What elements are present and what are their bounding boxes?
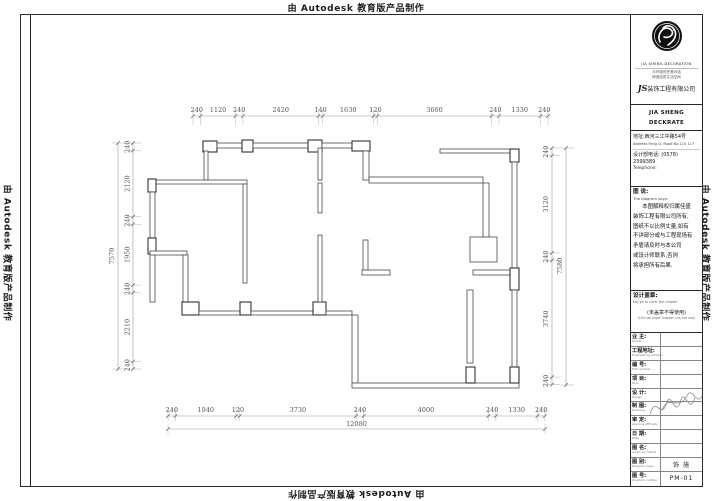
- phone-en: Telephone:: [633, 166, 700, 172]
- dim-label: 3730: [290, 406, 307, 414]
- row-sublabel: Owner: [632, 340, 659, 344]
- company-logo-section: JIA SHENG DECORATION 与环境的完美对话 缔造品质生活空间 J…: [631, 15, 702, 105]
- dim-label: 1950: [124, 246, 132, 263]
- autodesk-watermark-left: 由 Autodesk 教育版产品制作: [2, 185, 15, 322]
- stamp-label-en: Key go to cover the chapter: [633, 300, 700, 304]
- company-name-en-line1: JIA SHENG DECKRATE: [631, 108, 702, 128]
- dim-label: 240: [166, 406, 178, 414]
- dim-label: 240: [538, 106, 550, 114]
- table-row-project-address: 工程地址:Engineering address: [631, 347, 702, 361]
- diagram-label-cn: 图 说:: [633, 189, 700, 196]
- row-value: [661, 333, 702, 346]
- table-row-design: 设 计:Design: [631, 389, 702, 403]
- row-sublabel: Approve officially: [632, 423, 659, 427]
- dim-total-label: 7570: [108, 248, 116, 265]
- table-row-number: 编 号:Plot number: [631, 361, 702, 375]
- floor-plan-drawing: 240 1120 240 2420 140 1630 120 3660 240 …: [31, 14, 628, 487]
- dim-total-label: 7580: [556, 258, 564, 275]
- stamp-section: 设计盖章: Key go to cover the chapter (未盖章不得…: [631, 291, 702, 333]
- row-value: [661, 375, 702, 388]
- dimension-labels: 240 1120 240 2420 140 1630 120 3660 240 …: [108, 106, 564, 428]
- autodesk-watermark-bottom: 由 Autodesk 教育版产品制作: [0, 488, 712, 501]
- table-row-date: 日 期:Date: [631, 430, 702, 444]
- row-sublabel: Item: [632, 382, 659, 386]
- phone-cn: 设计部电话: (0578) 2399389: [633, 152, 700, 166]
- row-sublabel: Plot number: [632, 368, 659, 372]
- dim-label: 240: [124, 359, 132, 371]
- row-value: [661, 347, 702, 360]
- row-sublabel: Engineering address: [632, 354, 659, 358]
- dim-label: 3660: [426, 106, 443, 114]
- title-block: JIA SHENG DECORATION 与环境的完美对话 缔造品质生活空间 J…: [630, 15, 702, 486]
- dim-label: 2120: [124, 175, 132, 192]
- dim-label: 240: [124, 283, 132, 295]
- table-row-drawing-class: 图 别:Diagram class 饰 施: [631, 458, 702, 472]
- note-line: 或设计师联系,否则: [633, 252, 700, 262]
- stamp-note-en: (Did not cover chapter can not use): [633, 316, 700, 320]
- diagram-label-en: The diagram says:: [633, 196, 700, 201]
- autodesk-watermark-top: 由 Autodesk 教育版产品制作: [0, 1, 712, 14]
- dim-label: 1330: [508, 406, 525, 414]
- company-name-cn: JS装饰工程有限公司: [631, 83, 702, 93]
- dim-label: 140: [314, 106, 326, 114]
- dim-label: 240: [542, 375, 550, 387]
- walls: [148, 140, 519, 388]
- table-row-drawing-number: 图 号:Diagram number PM-01: [631, 472, 702, 486]
- dim-label: 240: [542, 250, 550, 262]
- dim-label: 120: [232, 406, 244, 414]
- row-value: [661, 361, 702, 374]
- table-row-approval: 审 定:Approve officially: [631, 416, 702, 430]
- logo-caption: JIA SHENG DECORATION: [631, 62, 702, 66]
- address-cn: 地址:西河三江中路54号: [633, 134, 700, 141]
- row-sublabel: Date: [632, 437, 659, 441]
- dim-label: 3120: [542, 196, 550, 213]
- row-sublabel: Diagram class: [632, 465, 659, 469]
- table-row-owner: 业 主:Owner: [631, 333, 702, 347]
- note-line: 不详部分或与工程现场有: [633, 232, 700, 242]
- company-logo-icon: [649, 18, 685, 58]
- row-value: [661, 430, 702, 443]
- dim-label: 2420: [272, 106, 289, 114]
- dim-label: 240: [535, 406, 547, 414]
- logo-tagline-2: 缔造品质生活空间: [631, 75, 702, 80]
- row-value: [661, 402, 702, 415]
- table-row-drawing-name: 图 名:Action for Name: [631, 444, 702, 458]
- dim-label: 2210: [124, 319, 132, 336]
- dim-label: 240: [124, 214, 132, 226]
- dim-label: 120: [369, 106, 381, 114]
- dim-label: 240: [233, 106, 245, 114]
- row-sublabel: Action for Name: [632, 451, 659, 455]
- dim-label: 4000: [418, 406, 435, 414]
- dim-label: 240: [486, 406, 498, 414]
- logo-tagline-1: 与环境的完美对话: [635, 68, 698, 75]
- stamp-label-cn: 设计盖章:: [633, 293, 700, 300]
- company-name-en: JIA SHENG DECKRATE WOCKRPORATERKS: [631, 105, 702, 131]
- row-value: PM-01: [661, 472, 702, 486]
- title-block-table: 业 主:Owner 工程地址:Engineering address 编 号:P…: [631, 333, 702, 486]
- table-row-item: 项 目:Item: [631, 375, 702, 389]
- row-sublabel: Diagram number: [632, 479, 659, 483]
- dim-label: 1630: [340, 106, 357, 114]
- dim-label: 240: [191, 106, 203, 114]
- note-line: 将承担所有后果.: [633, 262, 700, 272]
- company-name-cn-text: 装饰工程有限公司: [647, 86, 695, 93]
- row-sublabel: Design: [632, 396, 659, 400]
- address-section: 地址:西河三江中路54号 Address Feng Q. Road No.115…: [631, 131, 702, 187]
- dim-total-label: 12080: [346, 420, 367, 428]
- note-line: 本图解释权归属佳盛: [633, 203, 700, 213]
- row-value: 饰 施: [661, 458, 702, 471]
- dim-label: 1120: [210, 106, 227, 114]
- row-value: [661, 444, 702, 457]
- address-en: Address Feng Q. Road No.115 117: [633, 141, 700, 150]
- dim-label: 3740: [542, 311, 550, 328]
- dim-label: 1330: [512, 106, 529, 114]
- row-sublabel: Drawing: [632, 409, 659, 413]
- note-line: 矛盾请及时与本公司: [633, 242, 700, 252]
- company-prefix: JS: [638, 83, 648, 93]
- row-value: [661, 389, 702, 402]
- dim-label: 240: [354, 406, 366, 414]
- table-row-drafting: 制 图:Drawing: [631, 402, 702, 416]
- dim-label: 240: [124, 141, 132, 153]
- row-value: [661, 416, 702, 429]
- diagram-notes-section: 图 说: The diagram says: 本图解释权归属佳盛 装饰工程有限公…: [631, 187, 702, 291]
- dim-label: 1940: [198, 406, 215, 414]
- note-line: 装饰工程有限公司所有,: [633, 213, 700, 223]
- dim-label: 240: [489, 106, 501, 114]
- note-line: 图纸不以比例丈量,如有: [633, 223, 700, 233]
- dim-label: 240: [542, 146, 550, 158]
